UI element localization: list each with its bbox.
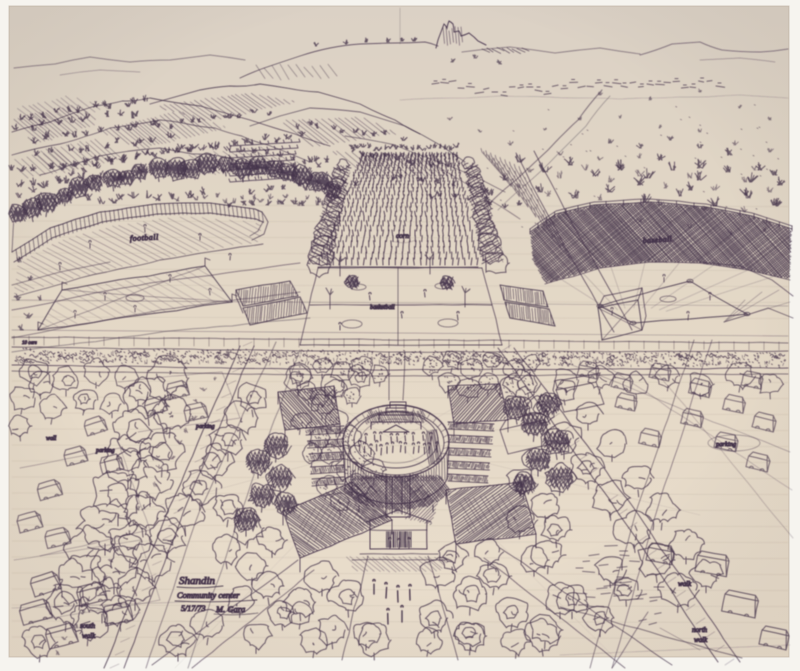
svg-text:parking: parking: [195, 424, 215, 430]
svg-text:Shandin: Shandin: [179, 575, 216, 587]
svg-text:football: football: [130, 232, 160, 243]
svg-text:wall: wall: [46, 436, 57, 442]
svg-text:south: south: [80, 622, 96, 630]
svg-text:parking: parking: [715, 441, 737, 448]
svg-text:M. Gara: M. Gara: [215, 604, 245, 614]
svg-text:5/17/73: 5/17/73: [181, 604, 205, 613]
svg-text:walk: walk: [678, 580, 692, 588]
svg-text:parking: parking: [95, 448, 115, 454]
svg-text:walk: walk: [82, 632, 96, 640]
svg-text:corn: corn: [396, 232, 409, 240]
svg-text:basketball: basketball: [370, 305, 395, 311]
svg-text:Community center: Community center: [177, 590, 240, 600]
svg-text:north: north: [692, 626, 708, 634]
svg-text:walk: walk: [694, 636, 708, 644]
svg-text:10 cars: 10 cars: [22, 341, 37, 346]
